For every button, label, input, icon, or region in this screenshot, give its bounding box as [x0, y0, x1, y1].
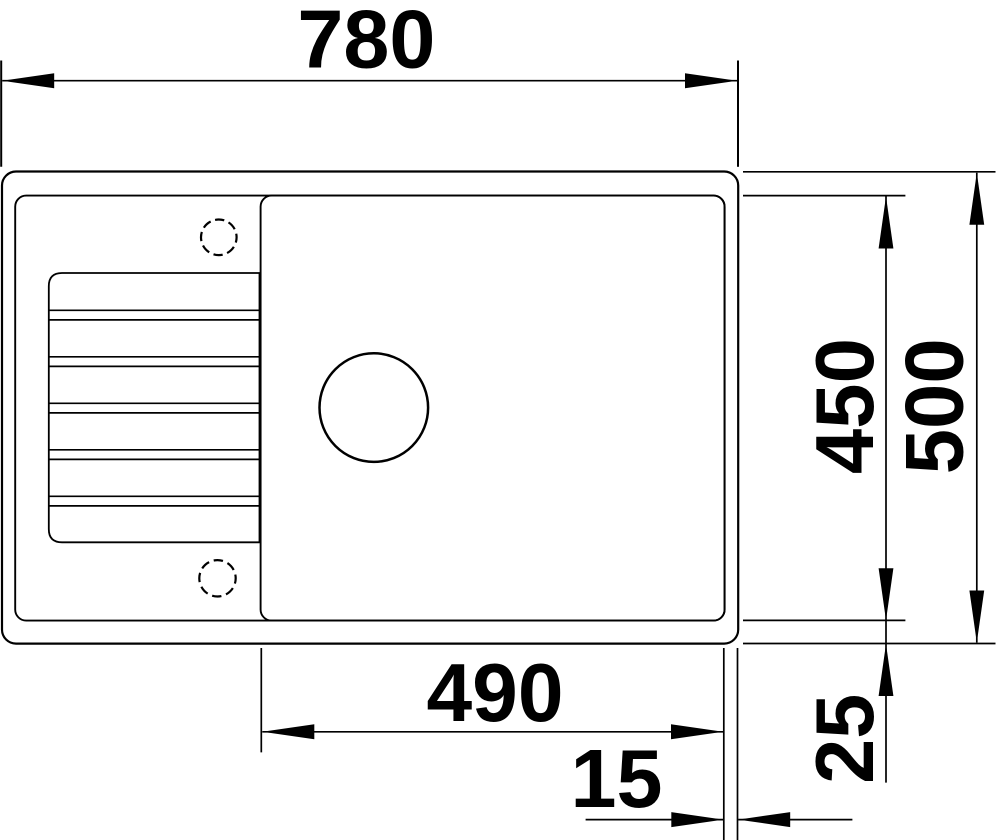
svg-text:15: 15 — [571, 732, 663, 825]
svg-text:25: 25 — [798, 694, 891, 784]
svg-text:490: 490 — [427, 646, 564, 739]
svg-text:450: 450 — [798, 338, 891, 474]
svg-text:780: 780 — [297, 0, 435, 86]
svg-text:500: 500 — [888, 338, 981, 474]
